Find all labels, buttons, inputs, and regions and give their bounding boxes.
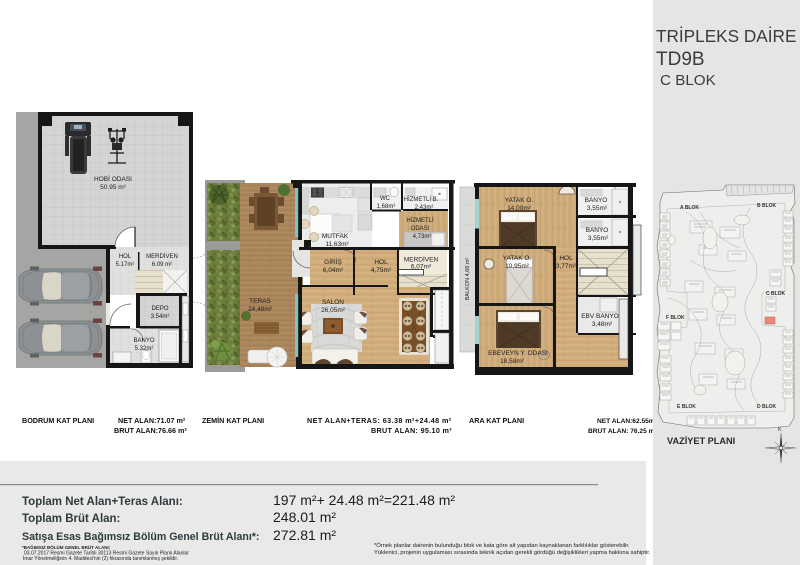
svg-text:*Örnek planlar dairenin bulund: *Örnek planlar dairenin bulunduğu blok v… [374,542,630,549]
svg-text:50.95 m²: 50.95 m² [100,184,126,191]
svg-text:5.17m²: 5.17m² [116,262,135,268]
svg-text:D BLOK: D BLOK [757,404,777,410]
svg-text:WC: WC [380,196,391,202]
svg-text:VAZİYET PLANI: VAZİYET PLANI [667,436,735,446]
svg-text:248.01 m²: 248.01 m² [273,509,336,525]
svg-text:YATAK O.: YATAK O. [503,255,532,262]
svg-text:ZEMİN KAT PLANI: ZEMİN KAT PLANI [202,416,264,425]
svg-text:Yüklenici, projenin uygulaması: Yüklenici, projenin uygulaması sırasında… [374,550,651,556]
svg-text:HİZMETLİ B.: HİZMETLİ B. [404,196,439,203]
svg-text:K: K [778,427,782,433]
svg-text:TERAS: TERAS [249,298,271,305]
svg-text:B BLOK: B BLOK [757,203,777,209]
svg-text:TRİPLEKS DAİRE: TRİPLEKS DAİRE [656,26,796,46]
svg-text:BANYO: BANYO [586,227,609,234]
svg-text:F BLOK: F BLOK [666,315,685,321]
svg-text:BRUT ALAN: 76.25 m³: BRUT ALAN: 76.25 m³ [588,428,657,435]
svg-text:DEPO: DEPO [151,306,168,312]
svg-text:11,63m²: 11,63m² [325,241,349,248]
svg-text:3,77m²: 3,77m² [556,263,577,270]
svg-text:BRUT ALAN: 95.10 m³: BRUT ALAN: 95.10 m³ [371,426,452,435]
svg-text:C BLOK: C BLOK [660,72,716,89]
svg-text:BALKON 4,66 m²: BALKON 4,66 m² [465,258,471,301]
svg-text:197 m²+ 24.48 m²=221.48 m²: 197 m²+ 24.48 m²=221.48 m² [273,492,455,508]
svg-text:6.09 m²: 6.09 m² [152,262,172,268]
svg-text:TD9B: TD9B [656,49,705,70]
svg-text:BODRUM KAT PLANI: BODRUM KAT PLANI [22,416,94,425]
svg-text:1,68m²: 1,68m² [377,204,396,210]
svg-text:EBEVEYN Y. ODASI: EBEVEYN Y. ODASI [488,350,548,357]
svg-text:C BLOK: C BLOK [766,291,786,297]
svg-text:26,05m²: 26,05m² [321,307,346,314]
svg-text:HOL: HOL [119,254,132,260]
svg-text:4,73m²: 4,73m² [413,234,432,240]
svg-text:4,75m²: 4,75m² [371,267,392,274]
svg-text:14,00m²: 14,00m² [507,205,532,212]
svg-text:A BLOK: A BLOK [680,205,699,211]
svg-text:HİZMETLİ: HİZMETLİ [406,217,434,224]
svg-text:ARA KAT PLANI: ARA KAT PLANI [469,416,524,425]
svg-text:272.81 m²: 272.81 m² [273,527,336,543]
svg-text:BANYO: BANYO [133,338,154,344]
svg-text:NET ALAN:62.55m²: NET ALAN:62.55m² [597,418,658,425]
svg-text:ODASI: ODASI [411,226,430,232]
svg-text:HOBİ ODASI: HOBİ ODASI [94,174,132,183]
svg-text:Satışa Esas Bağımsız Bölüm Gen: Satışa Esas Bağımsız Bölüm Genel Brüt Al… [22,531,259,543]
svg-text:NET ALAN+TERAS: 63.38 m²+24.48: NET ALAN+TERAS: 63.38 m²+24.48 m² [307,416,452,425]
svg-text:SALON: SALON [322,299,344,306]
svg-text:MUTFAK: MUTFAK [322,233,349,240]
svg-text:3,48m²: 3,48m² [592,321,613,328]
svg-text:Toplam Net Alan+Teras Alanı:: Toplam Net Alan+Teras Alanı: [22,496,183,508]
svg-text:İmar Yönetmeliğinin 4. Maddesi: İmar Yönetmeliğinin 4. Maddesi'nin (2) f… [23,555,178,562]
svg-text:HOL: HOL [559,255,573,262]
svg-text:5.32m²: 5.32m² [135,346,154,352]
svg-text:MERDİVEN: MERDİVEN [404,255,439,264]
svg-text:BANYO: BANYO [585,197,608,204]
svg-text:YATAK O.: YATAK O. [505,197,534,204]
svg-text:NET ALAN:71.07 m²: NET ALAN:71.07 m² [118,416,186,425]
svg-text:GİRİŞ: GİRİŞ [324,257,342,266]
svg-text:3.54m²: 3.54m² [151,314,170,320]
svg-text:Toplam Brüt Alan:: Toplam Brüt Alan: [22,513,120,525]
svg-text:MERDİVEN: MERDİVEN [146,253,178,260]
svg-text:BRUT ALAN:76.66 m²: BRUT ALAN:76.66 m² [114,426,187,435]
svg-text:E BLOK: E BLOK [677,404,696,410]
svg-text:6,04m²: 6,04m² [323,267,344,274]
svg-text:3,55m²: 3,55m² [588,235,609,242]
svg-text:*BAĞIMSIZ BÖLÜM GENEL BRÜT ALA: *BAĞIMSIZ BÖLÜM GENEL BRÜT ALANI; [22,543,111,550]
svg-text:HOL: HOL [374,259,388,266]
svg-text:18,58m²: 18,58m² [500,358,525,365]
svg-text:3,55m²: 3,55m² [587,205,608,212]
svg-text:10,95m²: 10,95m² [505,263,530,270]
svg-text:EBV BANYO: EBV BANYO [581,313,619,320]
svg-text:24,48m²: 24,48m² [248,306,273,313]
